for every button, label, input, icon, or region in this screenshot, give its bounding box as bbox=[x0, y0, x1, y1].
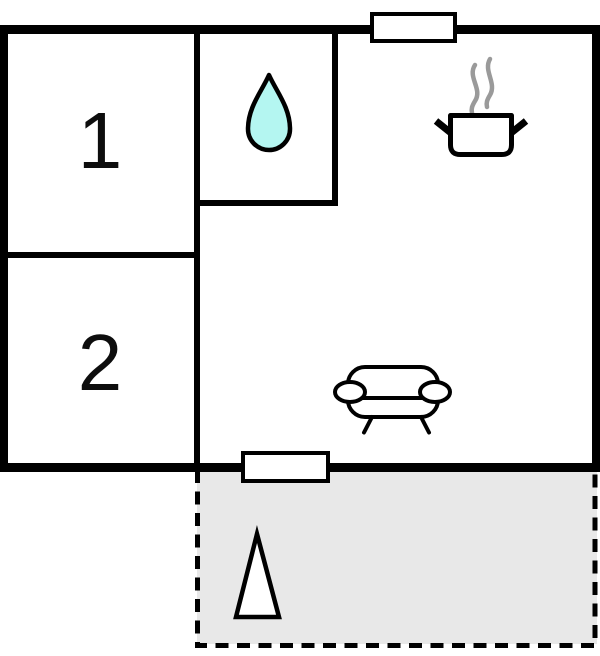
wall-bathroom-right bbox=[332, 25, 338, 206]
water-drop-icon bbox=[248, 75, 290, 150]
cooking-pot-icon bbox=[436, 59, 526, 155]
floor-plan-svg: 1 2 bbox=[0, 0, 600, 656]
wall-left bbox=[0, 25, 8, 472]
wall-room-divider bbox=[0, 252, 200, 258]
wall-bathroom-bottom bbox=[194, 200, 338, 206]
sofa-armrest-left bbox=[335, 382, 365, 402]
floor-plan: 1 2 bbox=[0, 0, 600, 656]
window-opening bbox=[372, 14, 455, 41]
pot-body bbox=[451, 116, 512, 155]
wall-inner-vertical bbox=[194, 25, 200, 472]
room-1-label: 1 bbox=[78, 96, 123, 185]
sofa-legs bbox=[364, 417, 429, 433]
sofa-icon bbox=[335, 367, 450, 433]
steam-icon bbox=[472, 59, 492, 113]
sofa-armrest-right bbox=[420, 382, 450, 402]
room-2-label: 2 bbox=[78, 318, 123, 407]
terrace-area bbox=[197, 470, 597, 646]
wall-right bbox=[592, 25, 600, 472]
door-opening bbox=[243, 453, 328, 481]
wall-top bbox=[0, 25, 600, 34]
